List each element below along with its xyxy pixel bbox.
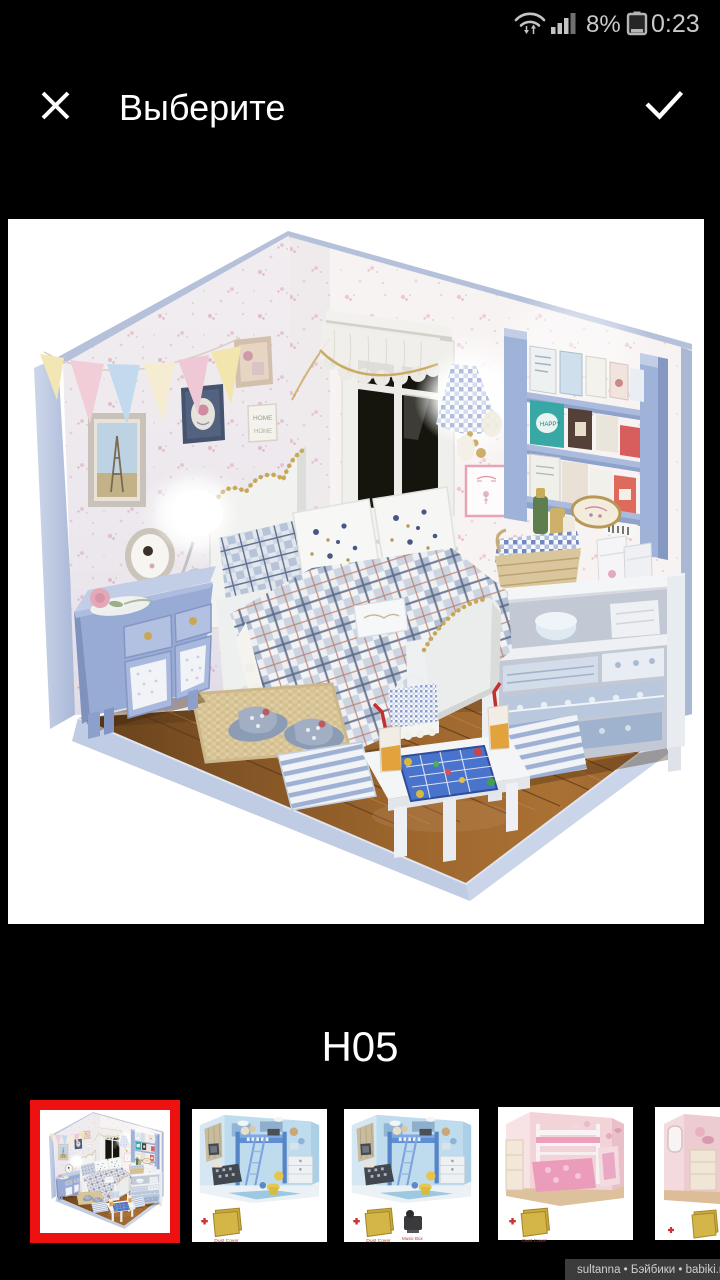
svg-text:Выберите: Выберите xyxy=(119,87,285,128)
svg-text:0:23: 0:23 xyxy=(651,10,700,38)
svg-text:sultanna • Бэйбики • babiki.ru: sultanna • Бэйбики • babiki.ru xyxy=(577,1264,720,1276)
svg-text:H05: H05 xyxy=(321,1023,398,1070)
svg-text:8%: 8% xyxy=(586,11,621,38)
svg-text:Music Box: Music Box xyxy=(402,1236,424,1241)
